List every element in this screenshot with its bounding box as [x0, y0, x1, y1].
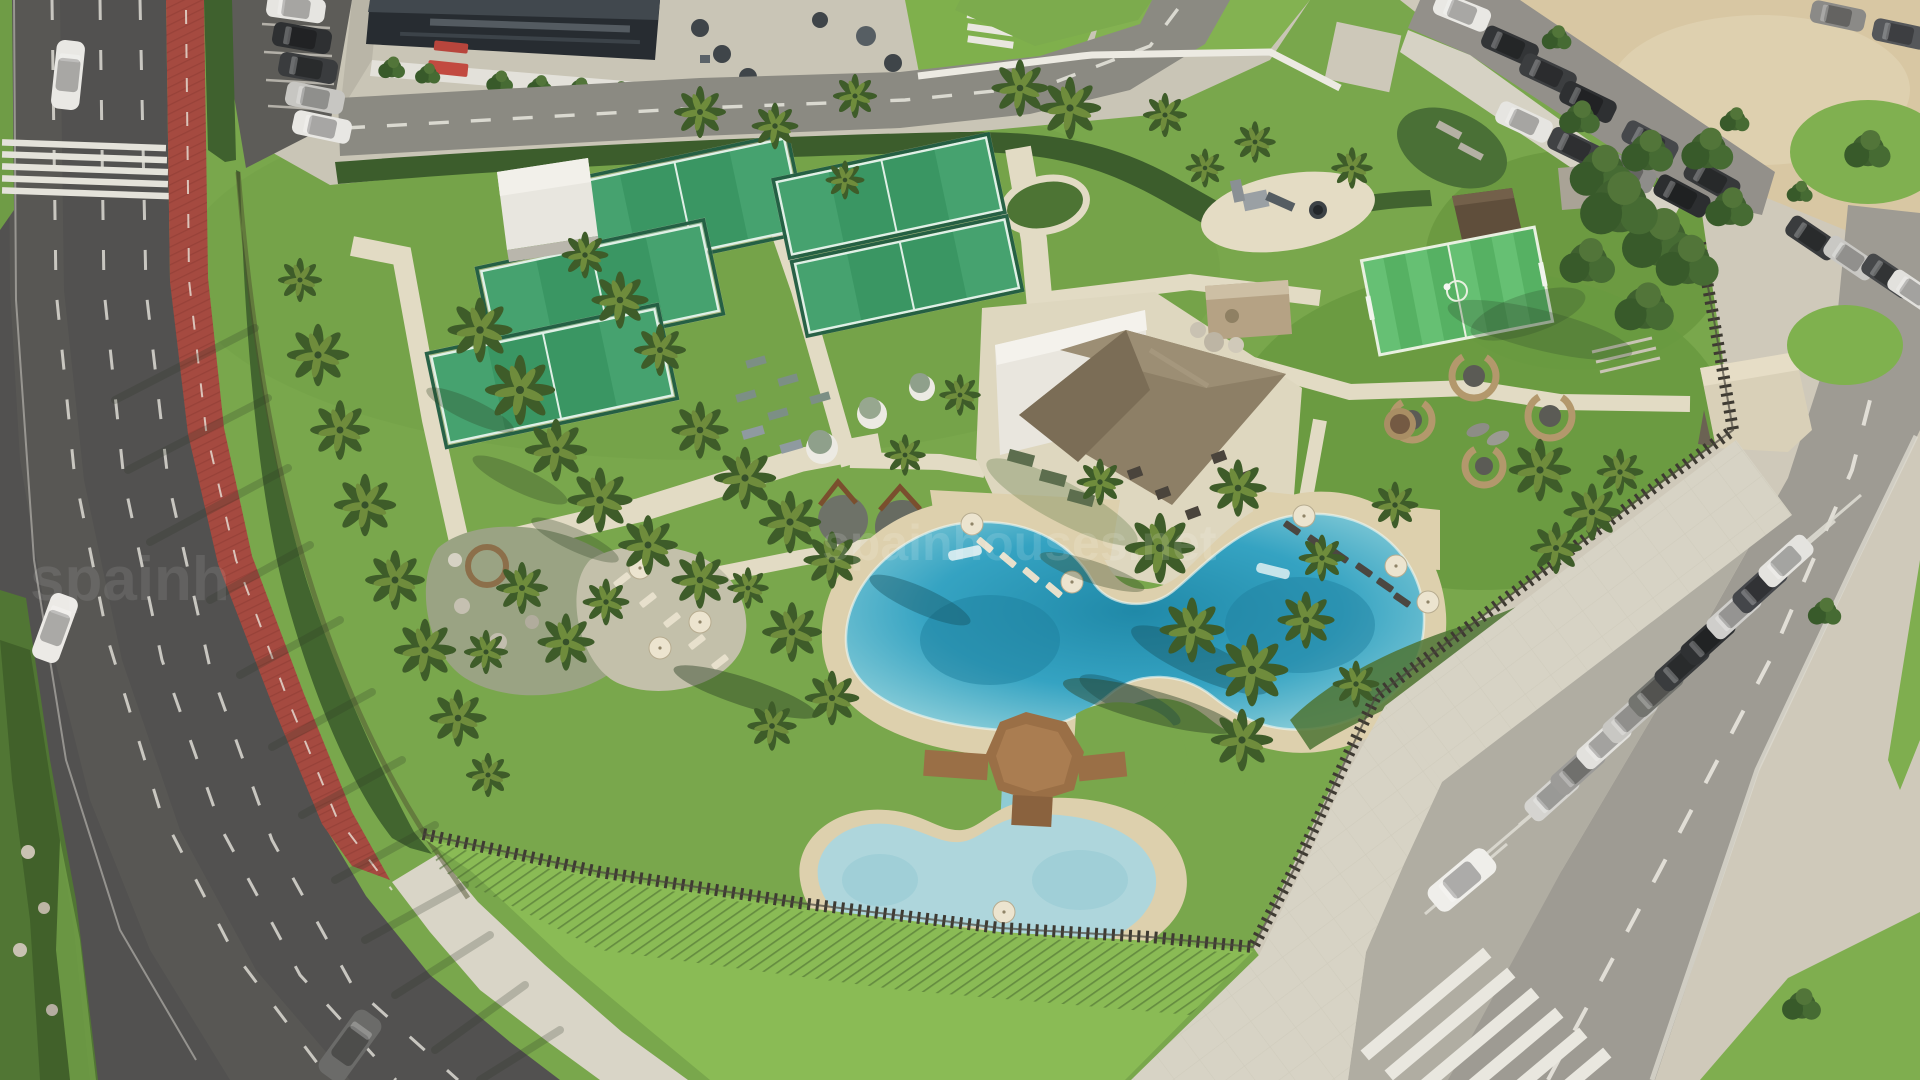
svg-text:spainhouses.net: spainhouses.net: [822, 515, 1217, 571]
svg-text:spainh: spainh: [30, 545, 230, 614]
